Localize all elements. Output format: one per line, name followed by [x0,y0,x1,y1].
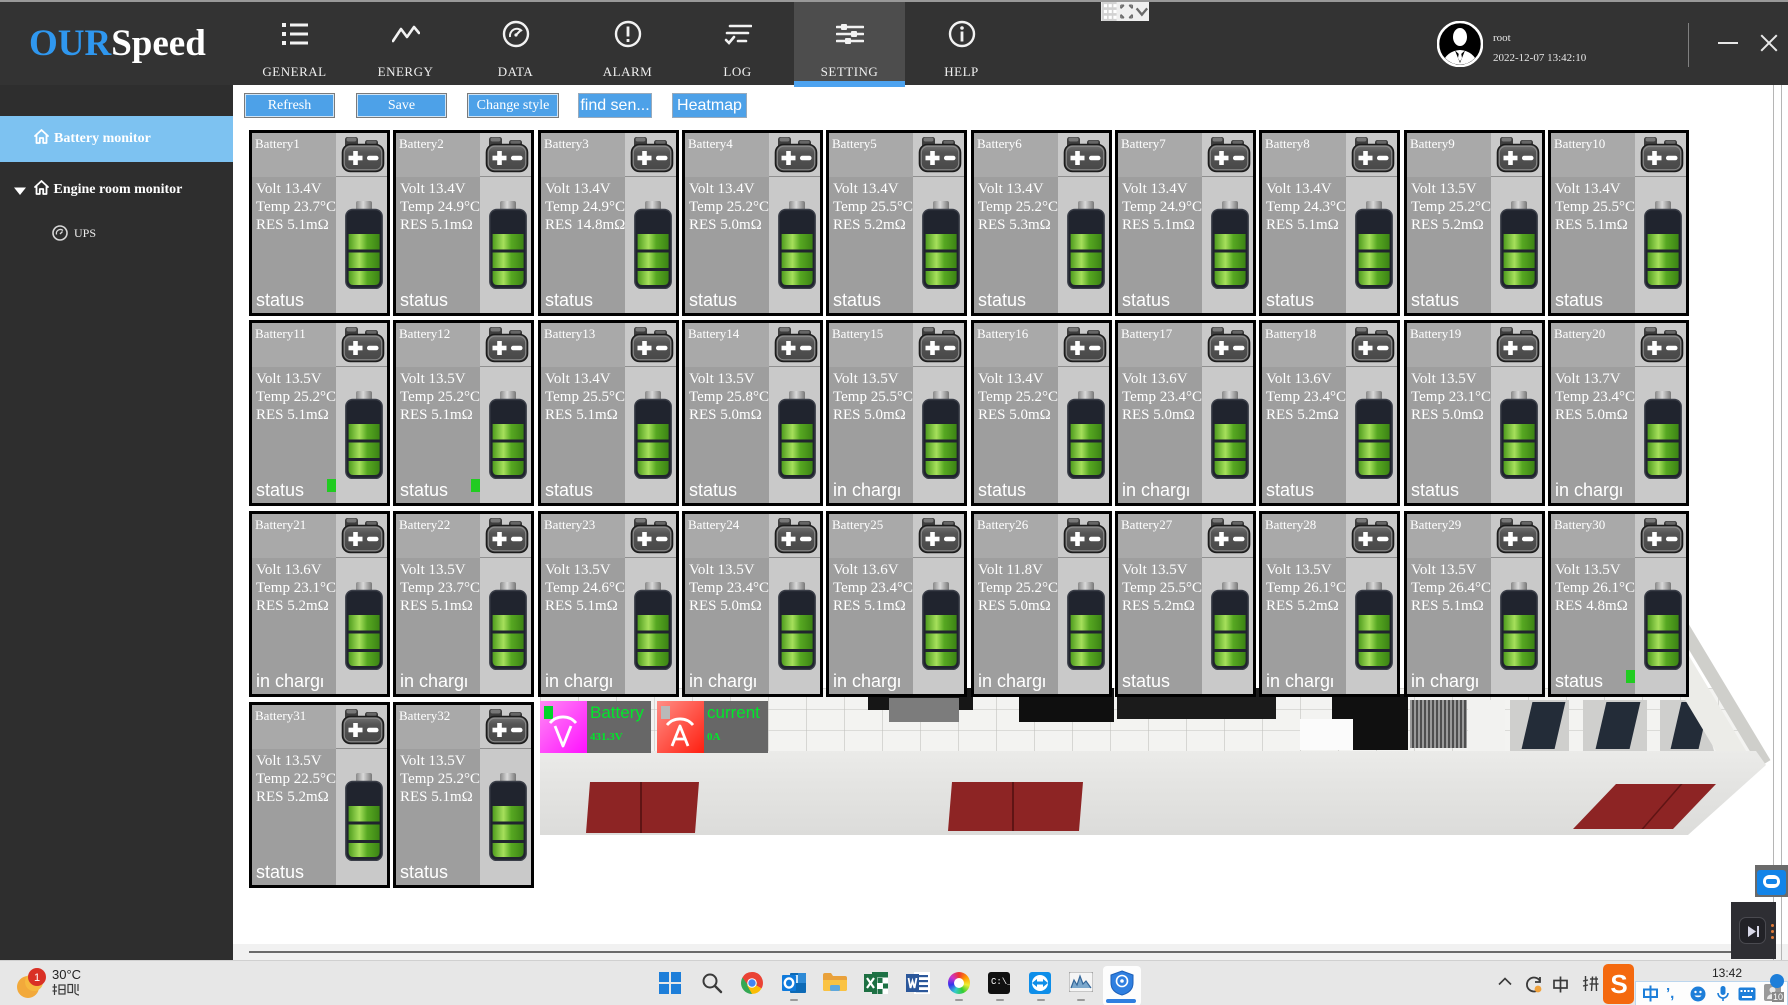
svg-text:1: 1 [34,972,40,984]
svg-text:C:\_: C:\_ [991,977,1010,987]
